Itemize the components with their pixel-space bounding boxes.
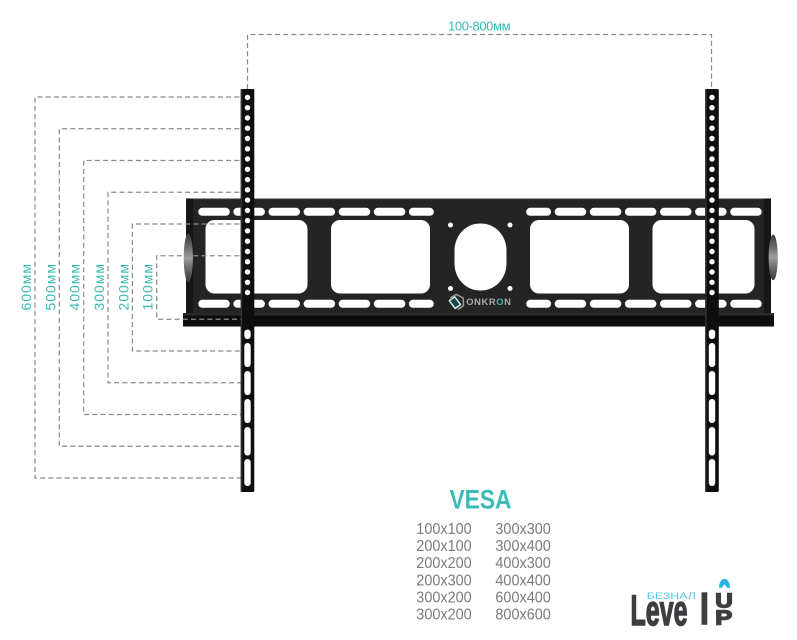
svg-text:400x400: 400x400 <box>495 572 550 589</box>
svg-text:300x200: 300x200 <box>416 607 471 624</box>
svg-text:200x200: 200x200 <box>416 555 471 572</box>
svg-text:P: P <box>715 608 732 630</box>
svg-text:300x400: 300x400 <box>495 538 550 555</box>
svg-text:200x100: 200x100 <box>416 538 471 555</box>
svg-text:100x100: 100x100 <box>416 521 471 538</box>
svg-text:100мм: 100мм <box>140 264 156 311</box>
svg-text:300мм: 300мм <box>91 264 107 311</box>
svg-text:500мм: 500мм <box>42 264 58 311</box>
svg-text:600x400: 600x400 <box>495 589 550 606</box>
svg-text:800x600: 800x600 <box>495 607 550 624</box>
svg-text:200мм: 200мм <box>115 264 131 311</box>
svg-text:400x300: 400x300 <box>495 555 550 572</box>
svg-text:ONKRON: ONKRON <box>466 296 511 307</box>
svg-text:100-800мм: 100-800мм <box>448 18 511 33</box>
svg-text:600мм: 600мм <box>18 264 34 311</box>
svg-text:Leve: Leve <box>631 587 688 635</box>
svg-text:200x300: 200x300 <box>416 572 471 589</box>
svg-text:VESA: VESA <box>450 485 512 515</box>
svg-text:300x300: 300x300 <box>495 521 550 538</box>
svg-text:300x200: 300x200 <box>416 589 471 606</box>
svg-text:400мм: 400мм <box>67 264 83 311</box>
